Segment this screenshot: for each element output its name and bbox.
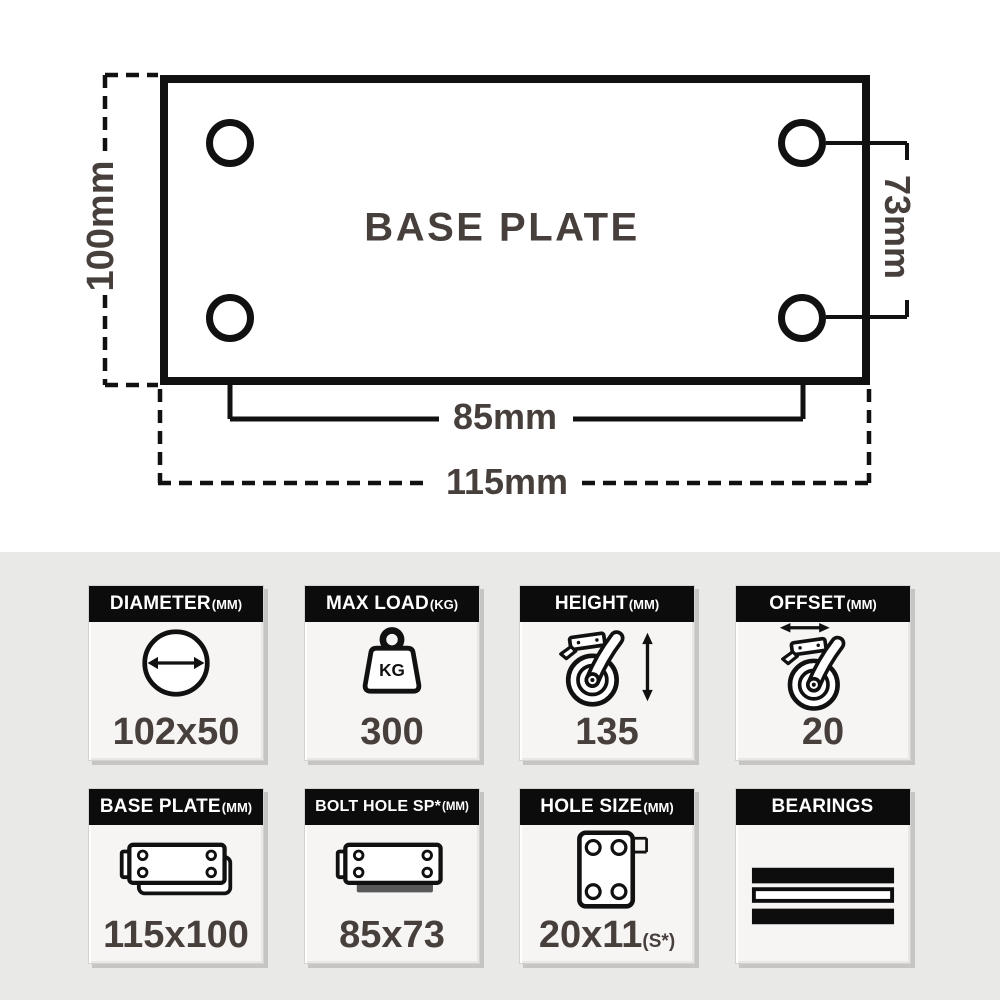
spec-tile-offset: OFFSET(MM) 20 <box>735 585 911 761</box>
tile-label: HOLE SIZE <box>540 796 642 818</box>
tile-value: 20 <box>736 713 910 751</box>
tile-label: BASE PLATE <box>100 796 221 818</box>
base-plate-icon <box>114 841 238 901</box>
tile-label-unit: (MM) <box>442 801 469 813</box>
bolt-hole-bottom-left <box>206 294 254 342</box>
tile-value-main: 20x11 <box>539 914 643 956</box>
tile-label: MAX LOAD <box>326 593 429 615</box>
dim-label-bolt-width: 85mm <box>453 399 557 435</box>
tile-label-unit: (MM) <box>212 597 242 612</box>
bolt-hole-top-left <box>206 119 254 167</box>
diameter-icon <box>140 627 212 699</box>
bearings-icon <box>750 865 896 927</box>
tile-value: 115x100 <box>89 916 263 954</box>
tile-body <box>736 825 910 964</box>
dim-label-bolt-height: 73mm <box>879 175 915 279</box>
bolt-hole-top-right <box>778 119 826 167</box>
caster-spec-sheet: BASE PLATE 100mm 73mm 85mm 115mm DIAMETE… <box>0 0 1000 1000</box>
tile-header: MAX LOAD(KG) <box>305 586 479 622</box>
tile-header: OFFSET(MM) <box>736 586 910 622</box>
spec-tile-base-plate: BASE PLATE(MM) 115x100 <box>88 788 264 964</box>
tile-value: 300 <box>305 713 479 751</box>
tile-value: 85x73 <box>305 916 479 954</box>
tile-label-unit: (MM) <box>629 597 659 612</box>
tile-label: OFFSET <box>769 593 845 615</box>
spec-tile-diameter: DIAMETER(MM) 102x50 <box>88 585 264 761</box>
dim-label-width: 115mm <box>446 464 568 500</box>
tile-label: DIAMETER <box>110 593 211 615</box>
tile-header: HEIGHT(MM) <box>520 586 694 622</box>
tile-value-suffix: (S*) <box>642 931 675 952</box>
bolt-hole-spacing-icon <box>330 841 454 901</box>
tile-header: DIAMETER(MM) <box>89 586 263 622</box>
tile-header: BASE PLATE(MM) <box>89 789 263 825</box>
tile-header: HOLE SIZE(MM) <box>520 789 694 825</box>
dim-label-height: 100mm <box>82 161 120 292</box>
tile-label: BEARINGS <box>772 796 874 818</box>
tile-body: KG 300 <box>305 622 479 761</box>
tile-label: HEIGHT <box>555 593 628 615</box>
spec-tile-bolt-hole-spacing: BOLT HOLE SP*(MM) 85x73 <box>304 788 480 964</box>
kg-text: KG <box>379 660 405 680</box>
max-load-weight-icon: KG <box>349 626 435 700</box>
tile-label-unit: (MM) <box>222 800 252 815</box>
tile-label-unit: (KG) <box>430 597 458 612</box>
tile-body: 135 <box>520 622 694 761</box>
tile-body: 20x11(S*) <box>520 825 694 964</box>
bolt-hole-bottom-right <box>778 294 826 342</box>
spec-tile-hole-size: HOLE SIZE(MM) 20x11(S*) <box>519 788 695 964</box>
spec-tiles-section: DIAMETER(MM) 102x50 MAX LOAD(KG) <box>0 552 1000 1000</box>
tile-label: BOLT HOLE SP* <box>315 798 441 816</box>
tile-label-unit: (MM) <box>846 597 876 612</box>
spec-tile-max-load: MAX LOAD(KG) KG 300 <box>304 585 480 761</box>
spec-tile-height: HEIGHT(MM) 135 <box>519 585 695 761</box>
tile-label-unit: (MM) <box>643 800 673 815</box>
height-caster-icon <box>557 624 657 710</box>
tile-body: 115x100 <box>89 825 263 964</box>
tile-body: 85x73 <box>305 825 479 964</box>
tile-header: BOLT HOLE SP*(MM) <box>305 789 479 825</box>
tile-body: 20 <box>736 622 910 761</box>
tile-body: 102x50 <box>89 622 263 761</box>
offset-caster-icon <box>775 622 871 714</box>
base-plate-diagram: BASE PLATE 100mm 73mm 85mm 115mm <box>0 0 1000 552</box>
tile-value: 20x11(S*) <box>520 916 694 954</box>
tile-value: 102x50 <box>89 713 263 751</box>
tile-header: BEARINGS <box>736 789 910 825</box>
plate-title: BASE PLATE <box>364 206 639 251</box>
spec-tile-bearings: BEARINGS <box>735 788 911 964</box>
tile-value: 135 <box>520 713 694 751</box>
hole-size-icon <box>561 827 653 913</box>
